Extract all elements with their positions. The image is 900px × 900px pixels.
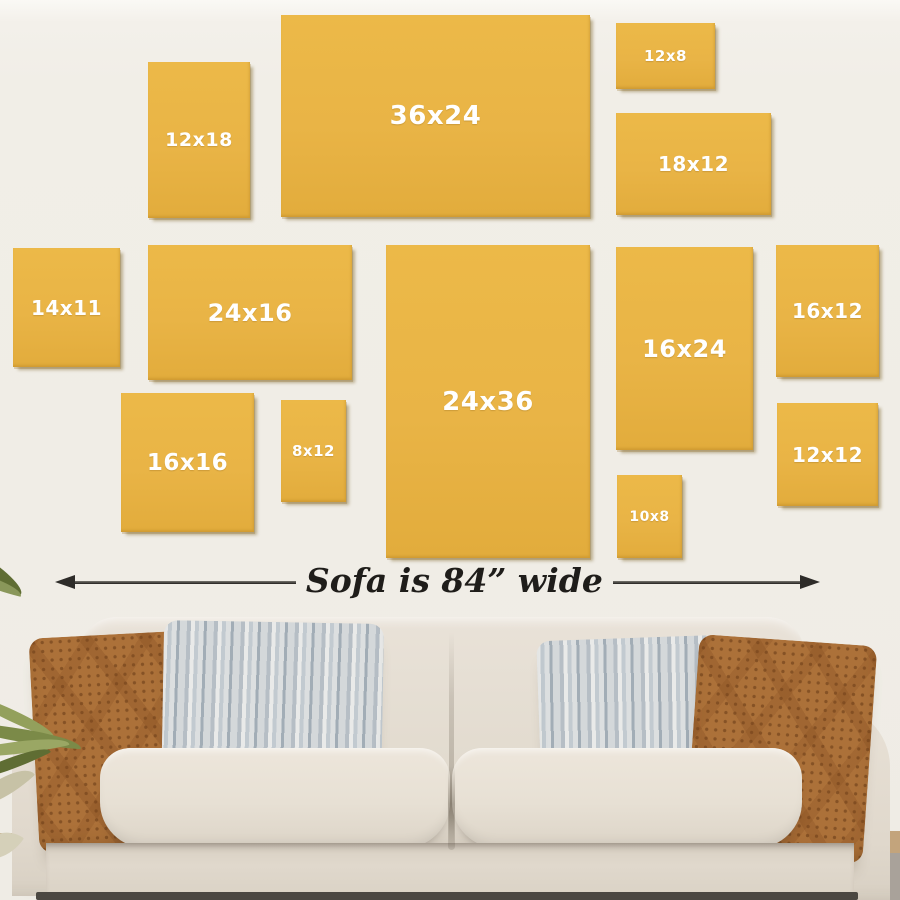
seat-cushion-gap xyxy=(448,766,455,850)
wall-background: { "colors": { "wall": "#F1EEE7", "wall_t… xyxy=(0,0,900,900)
sofa xyxy=(0,0,900,900)
floor-shadow-line xyxy=(36,892,858,900)
seat-cushion-right xyxy=(452,748,802,848)
seat-cushion-left xyxy=(100,748,450,848)
wall-shadow-right xyxy=(890,853,900,900)
sofa-skirt xyxy=(46,843,854,893)
